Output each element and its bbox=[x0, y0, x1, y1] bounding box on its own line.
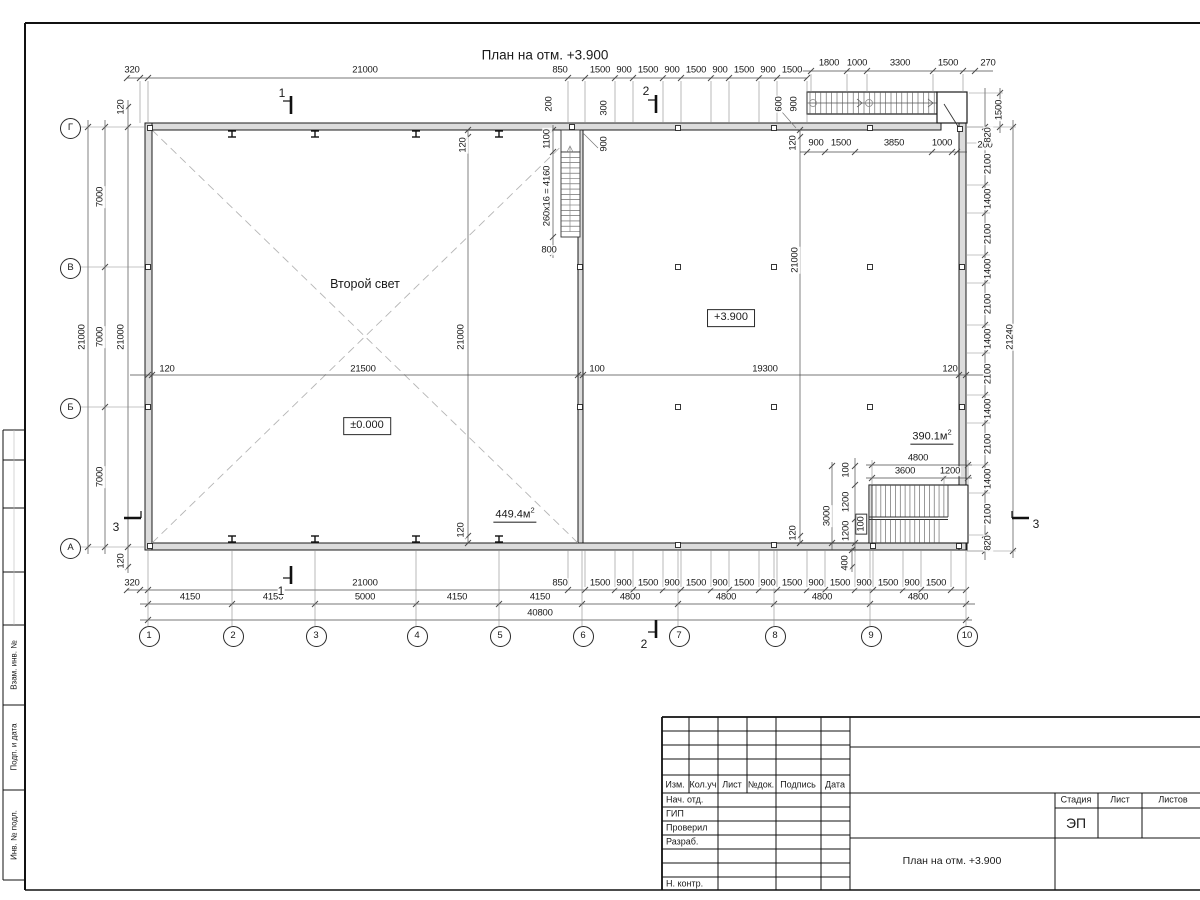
dim-label: 900 bbox=[807, 578, 824, 588]
dim-label: 2100 bbox=[983, 293, 993, 315]
dim-label: 120 bbox=[116, 552, 126, 569]
room-label: Второй свет bbox=[330, 277, 400, 291]
section-mark-label: 3 bbox=[1033, 518, 1040, 530]
dim-label: 900 bbox=[615, 65, 632, 75]
area-label: 390.1м2 bbox=[910, 428, 953, 445]
dim-label: 4150 bbox=[446, 592, 468, 602]
dim-label: 21000 bbox=[351, 65, 378, 75]
dim-label: 1500 bbox=[637, 65, 659, 75]
dim-label: 900 bbox=[807, 138, 824, 148]
dim-label: 4150 bbox=[529, 592, 551, 602]
dim-label: 7000 bbox=[95, 466, 105, 488]
grid-bubble-column: 8 bbox=[765, 626, 786, 647]
dim-label: 3600 bbox=[894, 466, 916, 476]
dim-label: 600 bbox=[774, 95, 784, 112]
dim-label: 21500 bbox=[349, 364, 376, 374]
dim-label: 3000 bbox=[822, 505, 832, 527]
titleblock-sign-row: Н. контр. bbox=[666, 880, 703, 889]
dim-label: 1500 bbox=[589, 578, 611, 588]
dim-label: 2100 bbox=[983, 433, 993, 455]
grid-bubble-column: 4 bbox=[407, 626, 428, 647]
frame-stamp-label: Подп. и дата bbox=[10, 723, 19, 770]
dim-label: 800 bbox=[540, 245, 557, 255]
dim-label: 900 bbox=[663, 65, 680, 75]
dim-label: 1400 bbox=[983, 398, 993, 420]
dim-label: 1800 bbox=[818, 58, 840, 68]
section-mark-label: 2 bbox=[643, 85, 650, 97]
dim-label: 120 bbox=[458, 136, 468, 153]
drawing-title: План на отм. +3.900 bbox=[482, 48, 609, 63]
dim-label: 4800 bbox=[811, 592, 833, 602]
dim-label: 1200 bbox=[939, 466, 961, 476]
dim-label: 100 bbox=[855, 513, 867, 534]
dim-label: 1500 bbox=[685, 65, 707, 75]
dim-label: 21000 bbox=[116, 323, 126, 350]
dim-label: 300 bbox=[599, 99, 609, 116]
dim-label: 900 bbox=[759, 65, 776, 75]
drawing-sheet: План на отм. +3.900 32021000850150090015… bbox=[0, 0, 1200, 900]
grid-bubble-column: 2 bbox=[223, 626, 244, 647]
grid-bubble-row: Б bbox=[60, 398, 81, 419]
section-mark-label: 1 bbox=[279, 87, 286, 99]
titleblock-sign-row: Разраб. bbox=[666, 838, 698, 847]
titleblock-header-cell: Дата bbox=[825, 781, 845, 790]
titleblock-header-cell: Изм. bbox=[665, 781, 684, 790]
dim-label: 120 bbox=[941, 364, 958, 374]
dim-label: 1500 bbox=[925, 578, 947, 588]
grid-bubble-column: 7 bbox=[669, 626, 690, 647]
dim-label: 4150 bbox=[179, 592, 201, 602]
titleblock-stage-header: Листов bbox=[1158, 796, 1187, 805]
titleblock-header-cell: №док. bbox=[748, 781, 774, 790]
dim-label: 7000 bbox=[95, 326, 105, 348]
dim-label: 1400 bbox=[983, 188, 993, 210]
dim-label: 1500 bbox=[589, 65, 611, 75]
titleblock-stage-value: ЭП bbox=[1066, 816, 1086, 830]
dim-label: 120 bbox=[456, 521, 466, 538]
dim-label: 270 bbox=[979, 58, 996, 68]
dim-label: 21000 bbox=[790, 246, 800, 273]
dim-label: 19300 bbox=[751, 364, 778, 374]
section-mark-label: 1 bbox=[278, 585, 285, 597]
dim-label: 1400 bbox=[983, 468, 993, 490]
dim-label: 900 bbox=[789, 95, 799, 112]
dim-label: 120 bbox=[158, 364, 175, 374]
dim-label: 120 bbox=[788, 134, 798, 151]
dim-label: 2100 bbox=[983, 363, 993, 385]
dim-label: 1400 bbox=[983, 328, 993, 350]
dim-label: 900 bbox=[759, 578, 776, 588]
dim-label: 1500 bbox=[733, 578, 755, 588]
dim-label: 850 bbox=[551, 578, 568, 588]
level-mark: +3.900 bbox=[707, 309, 755, 327]
titleblock-header-cell: Лист bbox=[722, 781, 742, 790]
grid-bubble-row: А bbox=[60, 538, 81, 559]
dim-label: 200 bbox=[544, 95, 554, 112]
dim-label: 2100 bbox=[983, 223, 993, 245]
dim-label: 850 bbox=[551, 65, 568, 75]
dim-label: 900 bbox=[711, 578, 728, 588]
dim-label: 4800 bbox=[907, 592, 929, 602]
dim-label: 1500 bbox=[637, 578, 659, 588]
dim-label: 900 bbox=[663, 578, 680, 588]
dim-label: 3850 bbox=[883, 138, 905, 148]
grid-bubble-column: 1 bbox=[139, 626, 160, 647]
grid-bubble-column: 10 bbox=[957, 626, 978, 647]
dim-label: 900 bbox=[903, 578, 920, 588]
dim-label: 900 bbox=[599, 135, 609, 152]
dim-label: 1500 bbox=[829, 578, 851, 588]
dim-label: 820 bbox=[983, 126, 993, 143]
dim-label: 21000 bbox=[456, 323, 466, 350]
dim-label: 5000 bbox=[354, 592, 376, 602]
dim-label: 100 bbox=[841, 461, 851, 478]
dim-label: 900 bbox=[711, 65, 728, 75]
area-label: 449.4м2 bbox=[493, 506, 536, 523]
grid-bubble-row: В bbox=[60, 258, 81, 279]
grid-bubble-row: Г bbox=[60, 118, 81, 139]
dim-label: 3300 bbox=[889, 58, 911, 68]
grid-bubble-column: 3 bbox=[306, 626, 327, 647]
level-mark: ±0.000 bbox=[343, 417, 391, 435]
section-mark-label: 3 bbox=[113, 521, 120, 533]
titleblock-header-cell: Кол.уч bbox=[690, 781, 717, 790]
dim-label: 7000 bbox=[95, 186, 105, 208]
dim-label: 320 bbox=[123, 578, 140, 588]
dim-label: 1500 bbox=[781, 578, 803, 588]
dim-label: 1400 bbox=[983, 258, 993, 280]
dim-label: 1500 bbox=[937, 58, 959, 68]
dim-label: 4800 bbox=[619, 592, 641, 602]
frame-stamp-label: Инв. № подл. bbox=[10, 810, 19, 860]
titleblock-stage-header: Стадия bbox=[1061, 796, 1092, 805]
titleblock-sign-row: Нач. отд. bbox=[666, 796, 703, 805]
titleblock-header-cell: Подпись bbox=[780, 781, 816, 790]
frame-stamp-label: Взам. инв. № bbox=[10, 640, 19, 690]
titleblock-sign-row: Проверил bbox=[666, 824, 707, 833]
dim-label: 2100 bbox=[983, 503, 993, 525]
dim-label: 120 bbox=[788, 524, 798, 541]
dim-label: 1200 bbox=[841, 491, 851, 513]
grid-bubble-column: 6 bbox=[573, 626, 594, 647]
dim-label: 21000 bbox=[77, 323, 87, 350]
dim-label: 4800 bbox=[715, 592, 737, 602]
dim-label: 120 bbox=[116, 98, 126, 115]
dim-label: 1500 bbox=[685, 578, 707, 588]
dim-label: 1500 bbox=[733, 65, 755, 75]
dim-label: 900 bbox=[855, 578, 872, 588]
titleblock-stage-header: Лист bbox=[1110, 796, 1130, 805]
section-mark-label: 2 bbox=[641, 638, 648, 650]
dim-label: 320 bbox=[123, 65, 140, 75]
dim-label: 400 bbox=[840, 554, 850, 571]
dim-label: 1100 bbox=[542, 128, 552, 150]
dim-label: 1000 bbox=[931, 138, 953, 148]
dim-label: 1500 bbox=[830, 138, 852, 148]
dim-label: 1000 bbox=[846, 58, 868, 68]
grid-bubble-column: 5 bbox=[490, 626, 511, 647]
dim-label: 1500 bbox=[781, 65, 803, 75]
dim-label: 21000 bbox=[351, 578, 378, 588]
dim-label: 21240 bbox=[1005, 323, 1015, 350]
dim-label: 4800 bbox=[907, 453, 929, 463]
dim-label: 40800 bbox=[526, 608, 553, 618]
dim-label: 260x16 = 4160 bbox=[542, 165, 552, 228]
dim-label: 1500 bbox=[877, 578, 899, 588]
dim-label: 900 bbox=[615, 578, 632, 588]
dim-label: 1200 bbox=[841, 520, 851, 542]
dim-label: 1500 bbox=[994, 99, 1004, 121]
grid-bubble-column: 9 bbox=[861, 626, 882, 647]
dim-label: 820 bbox=[983, 534, 993, 551]
dim-label: 100 bbox=[588, 364, 605, 374]
titleblock-sign-row: ГИП bbox=[666, 810, 684, 819]
titleblock-doc-title: План на отм. +3.900 bbox=[903, 856, 1002, 867]
dim-label: 2100 bbox=[983, 153, 993, 175]
